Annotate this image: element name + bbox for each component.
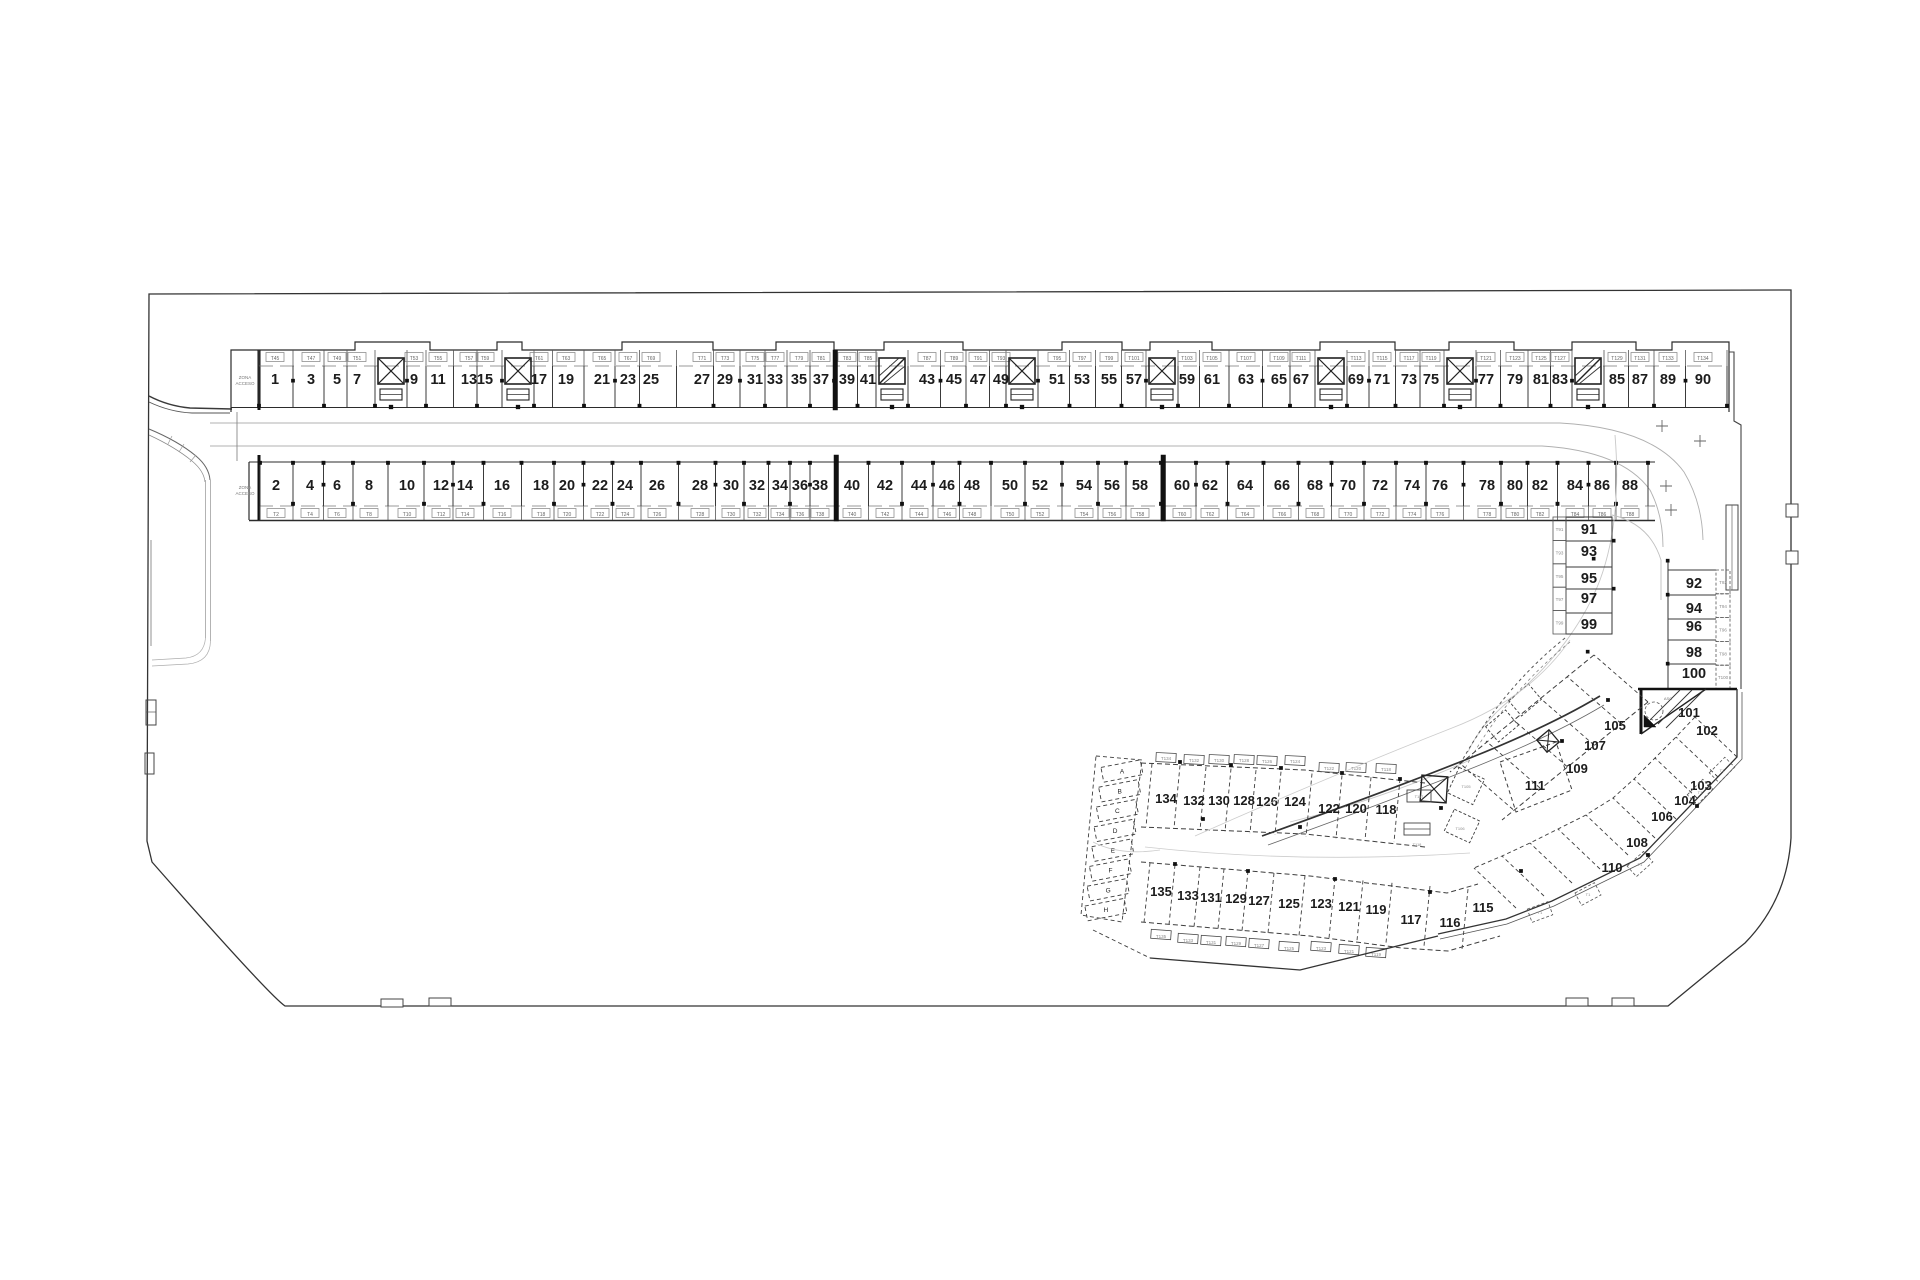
svg-text:T97: T97	[1078, 356, 1087, 362]
svg-text:D: D	[1113, 828, 1118, 835]
svg-text:32: 32	[749, 478, 765, 494]
svg-text:T88: T88	[1626, 512, 1635, 518]
svg-text:T115: T115	[1376, 356, 1387, 362]
svg-text:25: 25	[643, 372, 659, 388]
svg-text:22: 22	[592, 478, 608, 494]
svg-text:T89: T89	[950, 356, 959, 362]
svg-text:60: 60	[1174, 478, 1190, 494]
svg-text:T14: T14	[461, 512, 470, 518]
svg-text:20: 20	[559, 478, 575, 494]
svg-text:T57: T57	[465, 356, 474, 362]
svg-text:83: 83	[1552, 372, 1568, 388]
svg-text:121: 121	[1338, 899, 1360, 914]
svg-text:2: 2	[272, 478, 280, 494]
svg-text:30: 30	[723, 478, 739, 494]
svg-text:T68: T68	[1311, 512, 1320, 518]
svg-text:67: 67	[1293, 372, 1309, 388]
svg-text:35: 35	[791, 372, 807, 388]
svg-text:T64: T64	[1241, 512, 1250, 518]
svg-text:13: 13	[461, 372, 477, 388]
svg-text:14: 14	[457, 478, 473, 494]
svg-text:G: G	[1106, 887, 1111, 894]
svg-text:T125: T125	[1284, 946, 1295, 951]
svg-text:T82: T82	[1536, 512, 1545, 518]
svg-text:T133: T133	[1662, 356, 1674, 362]
svg-text:10: 10	[399, 478, 415, 494]
svg-text:3: 3	[307, 372, 315, 388]
svg-text:T56: T56	[1108, 512, 1117, 518]
svg-text:84: 84	[1567, 478, 1583, 494]
svg-text:T28: T28	[696, 512, 705, 518]
svg-text:42: 42	[877, 478, 893, 494]
svg-text:66: 66	[1274, 478, 1290, 494]
svg-text:57: 57	[1126, 372, 1142, 388]
svg-text:T91: T91	[1556, 527, 1564, 532]
svg-text:T52: T52	[1036, 512, 1045, 518]
svg-text:69: 69	[1348, 372, 1364, 388]
svg-text:76: 76	[1432, 478, 1448, 494]
svg-text:T134: T134	[1161, 756, 1172, 761]
svg-text:106: 106	[1651, 809, 1673, 824]
svg-text:21: 21	[594, 372, 610, 388]
svg-text:41: 41	[860, 372, 876, 388]
svg-text:T118: T118	[1381, 767, 1391, 772]
svg-text:T125: T125	[1535, 356, 1547, 362]
svg-text:T32: T32	[753, 512, 762, 518]
svg-text:T93: T93	[997, 356, 1006, 362]
svg-text:T63: T63	[562, 356, 571, 362]
svg-text:100: 100	[1682, 666, 1706, 682]
svg-text:T1: T1	[1538, 910, 1543, 915]
svg-text:T128: T128	[1239, 758, 1250, 763]
svg-text:T81: T81	[817, 356, 826, 362]
svg-text:T79: T79	[795, 356, 804, 362]
svg-text:T61: T61	[535, 356, 544, 362]
svg-text:120: 120	[1345, 801, 1367, 816]
svg-text:72: 72	[1372, 478, 1388, 494]
svg-text:37: 37	[813, 372, 829, 388]
svg-text:101: 101	[1678, 705, 1700, 720]
svg-text:T75: T75	[751, 356, 760, 362]
svg-text:T30: T30	[727, 512, 736, 518]
svg-text:T38: T38	[816, 512, 825, 518]
svg-text:T59: T59	[481, 356, 490, 362]
svg-text:T42: T42	[881, 512, 890, 518]
svg-text:71: 71	[1374, 372, 1390, 388]
svg-text:129: 129	[1225, 891, 1247, 906]
svg-text:T122: T122	[1324, 766, 1335, 771]
svg-text:74: 74	[1404, 478, 1420, 494]
svg-text:T94: T94	[1719, 604, 1727, 609]
svg-text:39: 39	[839, 372, 855, 388]
svg-text:T80: T80	[1511, 512, 1520, 518]
svg-text:T54: T54	[1080, 512, 1089, 518]
svg-text:96: 96	[1686, 619, 1702, 635]
svg-text:80: 80	[1507, 478, 1523, 494]
svg-text:T22: T22	[596, 512, 605, 518]
svg-text:45: 45	[946, 372, 962, 388]
svg-text:26: 26	[649, 478, 665, 494]
svg-text:122: 122	[1318, 801, 1340, 816]
svg-text:T10: T10	[403, 512, 412, 518]
svg-text:44: 44	[911, 478, 927, 494]
svg-text:11: 11	[430, 372, 445, 388]
svg-text:T6: T6	[334, 512, 340, 518]
svg-text:117: 117	[1401, 912, 1422, 927]
svg-text:1: 1	[271, 372, 279, 388]
svg-text:40: 40	[844, 478, 860, 494]
svg-text:T65: T65	[598, 356, 607, 362]
svg-text:24: 24	[617, 478, 633, 494]
svg-text:12: 12	[433, 478, 449, 494]
svg-text:T73: T73	[721, 356, 730, 362]
svg-text:T129: T129	[1231, 941, 1242, 946]
svg-text:87: 87	[1632, 372, 1648, 388]
svg-text:86: 86	[1594, 478, 1610, 494]
svg-text:51: 51	[1049, 372, 1065, 388]
svg-text:49: 49	[993, 372, 1009, 388]
svg-text:T131: T131	[1206, 940, 1217, 945]
svg-text:108: 108	[1626, 835, 1648, 850]
svg-text:T130: T130	[1214, 758, 1225, 763]
svg-text:T127: T127	[1554, 356, 1566, 362]
svg-text:T103: T103	[1181, 356, 1193, 362]
svg-text:109: 109	[1566, 761, 1588, 776]
svg-text:T72: T72	[1376, 512, 1385, 518]
svg-text:124: 124	[1284, 794, 1306, 809]
svg-text:116: 116	[1440, 915, 1461, 930]
svg-text:T77: T77	[771, 356, 780, 362]
svg-text:ACCESO: ACCESO	[235, 381, 255, 386]
svg-text:T76: T76	[1436, 512, 1445, 518]
svg-text:T106: T106	[1455, 826, 1465, 831]
svg-text:T126: T126	[1262, 759, 1273, 764]
svg-text:15: 15	[477, 372, 493, 388]
svg-text:T135: T135	[1156, 934, 1167, 939]
svg-text:F: F	[1109, 868, 1113, 875]
svg-text:36: 36	[792, 478, 808, 494]
svg-text:T55: T55	[434, 356, 443, 362]
svg-text:135: 135	[1150, 884, 1172, 899]
svg-text:6: 6	[333, 478, 341, 494]
svg-text:5: 5	[333, 372, 341, 388]
svg-text:92: 92	[1686, 576, 1702, 592]
svg-text:79: 79	[1507, 372, 1523, 388]
svg-text:115: 115	[1473, 900, 1494, 915]
svg-text:97: 97	[1581, 591, 1597, 607]
svg-text:119: 119	[1366, 902, 1387, 917]
svg-text:T1: T1	[1720, 768, 1725, 773]
svg-text:T18: T18	[537, 512, 546, 518]
svg-text:T133: T133	[1183, 938, 1194, 943]
svg-text:64: 64	[1237, 478, 1253, 494]
svg-text:T51: T51	[353, 356, 362, 362]
svg-text:T50: T50	[1006, 512, 1015, 518]
svg-text:134: 134	[1155, 791, 1177, 806]
svg-text:T60: T60	[1178, 512, 1187, 518]
svg-text:62: 62	[1202, 478, 1218, 494]
svg-text:43: 43	[919, 372, 935, 388]
svg-text:A: A	[1120, 769, 1125, 776]
svg-text:59: 59	[1179, 372, 1195, 388]
svg-text:B: B	[1118, 788, 1122, 795]
svg-text:85: 85	[1609, 372, 1625, 388]
svg-text:T71: T71	[698, 356, 707, 362]
svg-text:19: 19	[558, 372, 574, 388]
svg-text:110: 110	[1602, 860, 1623, 875]
svg-text:81: 81	[1533, 372, 1549, 388]
svg-text:T45: T45	[271, 356, 280, 362]
svg-text:T34: T34	[776, 512, 785, 518]
svg-text:58: 58	[1132, 478, 1148, 494]
svg-text:T85: T85	[864, 356, 873, 362]
svg-text:T24: T24	[621, 512, 630, 518]
svg-text:T127: T127	[1254, 943, 1265, 948]
svg-text:T4: T4	[307, 512, 313, 518]
svg-text:T124: T124	[1290, 759, 1301, 764]
svg-text:T97: T97	[1556, 597, 1564, 602]
svg-text:T121: T121	[1344, 949, 1355, 954]
svg-text:68: 68	[1307, 478, 1323, 494]
svg-text:7: 7	[353, 372, 361, 388]
svg-text:T67: T67	[624, 356, 633, 362]
svg-text:T92: T92	[1719, 580, 1727, 585]
svg-text:31: 31	[747, 372, 763, 388]
svg-text:9: 9	[410, 372, 418, 388]
svg-text:T113: T113	[1350, 356, 1361, 362]
svg-text:T134: T134	[1697, 356, 1709, 362]
svg-text:33: 33	[767, 372, 783, 388]
svg-text:28: 28	[692, 478, 708, 494]
svg-text:77: 77	[1478, 372, 1494, 388]
svg-text:ASC: ASC	[1664, 696, 1672, 701]
svg-text:91: 91	[1581, 522, 1597, 538]
svg-text:38: 38	[812, 478, 828, 494]
svg-text:T95: T95	[1556, 574, 1564, 579]
svg-text:78: 78	[1479, 478, 1495, 494]
svg-text:T123: T123	[1509, 356, 1521, 362]
svg-text:55: 55	[1101, 372, 1117, 388]
svg-text:T87: T87	[923, 356, 932, 362]
svg-text:65: 65	[1271, 372, 1287, 388]
svg-text:T83: T83	[843, 356, 852, 362]
svg-text:H: H	[1104, 907, 1109, 914]
svg-text:T74: T74	[1408, 512, 1417, 518]
svg-text:29: 29	[717, 372, 733, 388]
svg-text:89: 89	[1660, 372, 1676, 388]
svg-text:133: 133	[1177, 888, 1199, 903]
svg-text:T118: T118	[1413, 842, 1423, 847]
svg-text:118: 118	[1376, 802, 1397, 817]
svg-text:T16: T16	[498, 512, 507, 518]
svg-text:T96: T96	[1719, 628, 1727, 633]
svg-text:75: 75	[1423, 372, 1439, 388]
svg-text:47: 47	[970, 372, 986, 388]
svg-text:123: 123	[1310, 896, 1332, 911]
svg-text:T8: T8	[366, 512, 372, 518]
svg-text:73: 73	[1401, 372, 1417, 388]
svg-text:T2: T2	[273, 512, 279, 518]
svg-text:T95: T95	[1053, 356, 1062, 362]
svg-text:98: 98	[1686, 645, 1702, 661]
svg-text:46: 46	[939, 478, 955, 494]
svg-text:T99: T99	[1556, 621, 1564, 626]
svg-text:T70: T70	[1344, 512, 1353, 518]
svg-text:T78: T78	[1483, 512, 1492, 518]
svg-text:T1: T1	[1638, 862, 1643, 867]
svg-text:128: 128	[1233, 793, 1255, 808]
svg-text:18: 18	[533, 478, 549, 494]
svg-text:48: 48	[964, 478, 980, 494]
svg-text:T100: T100	[1718, 675, 1729, 680]
svg-text:34: 34	[772, 478, 788, 494]
svg-text:102: 102	[1696, 723, 1718, 738]
svg-text:94: 94	[1686, 601, 1702, 617]
svg-text:ZONA: ZONA	[239, 485, 252, 490]
svg-text:T46: T46	[943, 512, 952, 518]
svg-text:T107: T107	[1240, 356, 1252, 362]
svg-text:8: 8	[365, 478, 373, 494]
svg-text:T93: T93	[1556, 550, 1564, 555]
svg-text:17: 17	[531, 372, 547, 388]
svg-text:56: 56	[1104, 478, 1120, 494]
svg-text:54: 54	[1076, 478, 1092, 494]
svg-text:23: 23	[620, 372, 636, 388]
svg-text:99: 99	[1581, 617, 1597, 633]
svg-text:131: 131	[1200, 890, 1222, 905]
svg-text:27: 27	[694, 372, 710, 388]
svg-text:T40: T40	[848, 512, 857, 518]
svg-text:T129: T129	[1611, 356, 1623, 362]
svg-text:T119: T119	[1425, 356, 1436, 362]
svg-text:T121: T121	[1480, 356, 1492, 362]
svg-text:T62: T62	[1206, 512, 1215, 518]
svg-text:T109: T109	[1273, 356, 1285, 362]
svg-text:111: 111	[1525, 778, 1545, 793]
svg-text:T98: T98	[1719, 651, 1727, 656]
svg-text:130: 130	[1208, 793, 1230, 808]
svg-text:T26: T26	[653, 512, 662, 518]
svg-text:T20: T20	[563, 512, 572, 518]
svg-text:T48: T48	[968, 512, 977, 518]
svg-text:T44: T44	[915, 512, 924, 518]
svg-text:16: 16	[494, 478, 510, 494]
svg-text:T101: T101	[1128, 356, 1140, 362]
svg-text:T131: T131	[1634, 356, 1646, 362]
svg-text:52: 52	[1032, 478, 1048, 494]
svg-text:82: 82	[1532, 478, 1548, 494]
svg-text:53: 53	[1074, 372, 1090, 388]
svg-text:T105: T105	[1461, 784, 1471, 789]
svg-text:T58: T58	[1136, 512, 1145, 518]
svg-text:T47: T47	[307, 356, 316, 362]
svg-text:T1: T1	[1586, 892, 1591, 897]
svg-text:T12: T12	[437, 512, 446, 518]
svg-text:90: 90	[1695, 372, 1711, 388]
svg-text:T66: T66	[1278, 512, 1287, 518]
svg-text:50: 50	[1002, 478, 1018, 494]
svg-text:T117: T117	[1403, 356, 1414, 362]
svg-text:4: 4	[306, 478, 314, 494]
svg-text:T53: T53	[410, 356, 419, 362]
svg-text:T1: T1	[1698, 790, 1703, 795]
svg-text:107: 107	[1584, 738, 1606, 753]
svg-text:ACCESO: ACCESO	[235, 491, 255, 496]
svg-text:125: 125	[1278, 896, 1300, 911]
svg-text:88: 88	[1622, 478, 1638, 494]
svg-text:T49: T49	[333, 356, 342, 362]
svg-text:T105: T105	[1206, 356, 1218, 362]
svg-text:63: 63	[1238, 372, 1254, 388]
svg-text:T117: T117	[1415, 794, 1425, 799]
svg-text:T99: T99	[1105, 356, 1114, 362]
svg-text:T111: T111	[1296, 356, 1307, 362]
svg-text:132: 132	[1183, 793, 1205, 808]
svg-text:104: 104	[1674, 793, 1696, 808]
svg-text:70: 70	[1340, 478, 1356, 494]
svg-text:C: C	[1115, 808, 1120, 815]
svg-text:T36: T36	[796, 512, 805, 518]
svg-text:127: 127	[1248, 893, 1270, 908]
svg-text:T69: T69	[647, 356, 656, 362]
svg-text:T91: T91	[974, 356, 983, 362]
svg-text:T132: T132	[1189, 758, 1200, 763]
svg-text:95: 95	[1581, 571, 1597, 587]
svg-text:61: 61	[1204, 372, 1220, 388]
svg-text:ZONA: ZONA	[239, 375, 252, 380]
svg-text:105: 105	[1604, 718, 1626, 733]
svg-text:T123: T123	[1316, 946, 1327, 951]
